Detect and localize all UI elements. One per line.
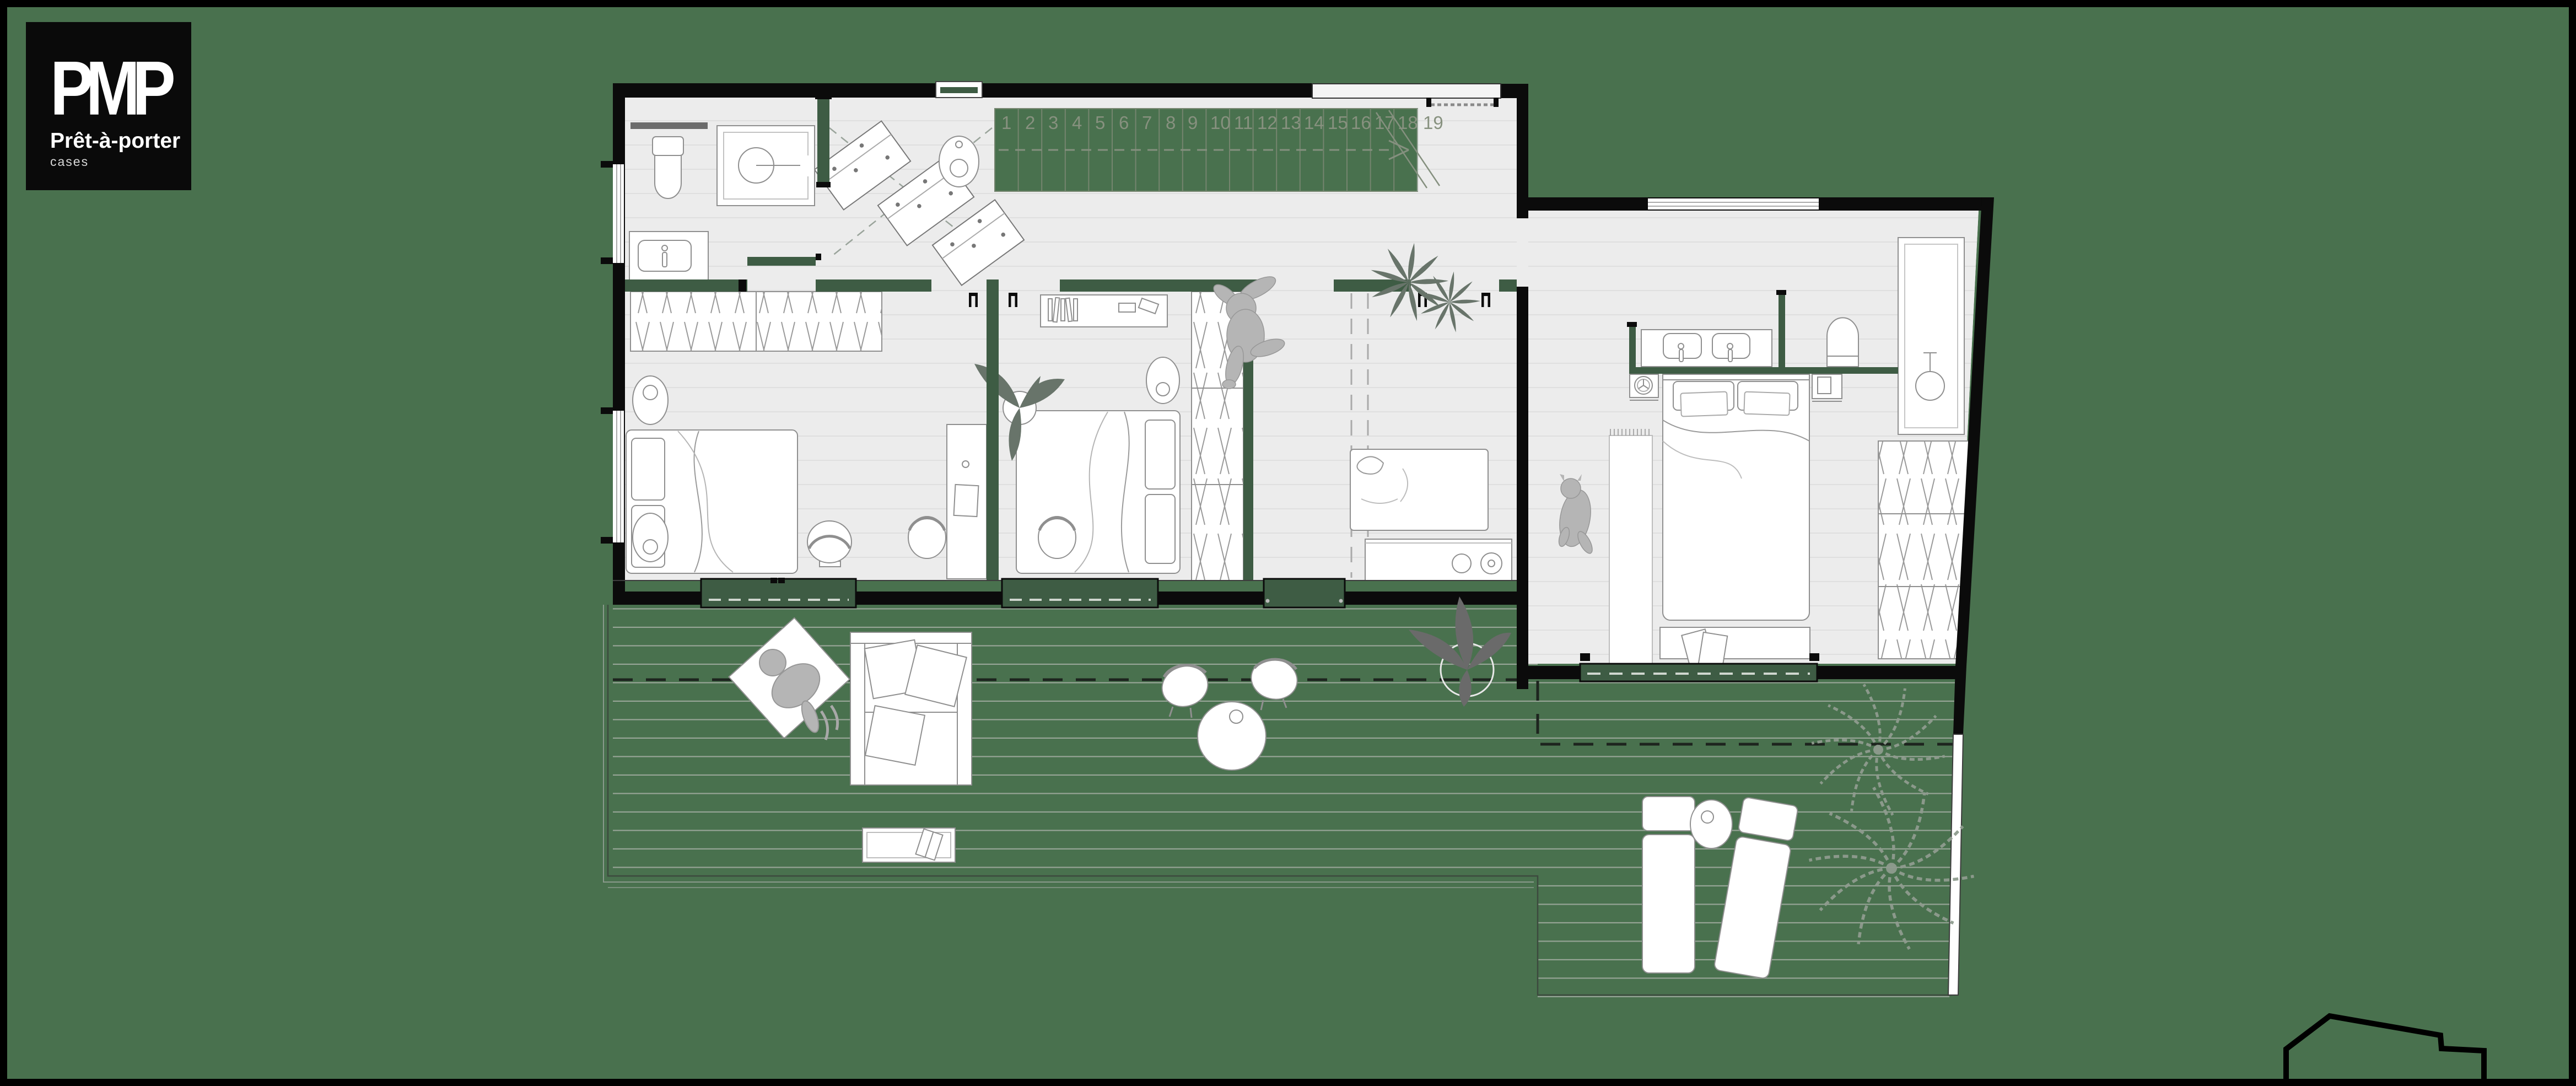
svg-text:18: 18 [1398, 112, 1418, 133]
pouf [1146, 357, 1179, 404]
nightstand-left [1630, 374, 1658, 400]
staircase: 1 2 3 4 5 6 7 8 9 10 11 12 13 14 15 16 1… [995, 109, 1443, 191]
pouf [633, 376, 668, 424]
svg-text:7: 7 [1142, 112, 1152, 133]
logo-subtitle: cases [50, 154, 191, 169]
toilet-icon [653, 137, 683, 198]
bathroom-sink-icon [629, 232, 708, 280]
svg-text:16: 16 [1351, 112, 1371, 133]
deck-door-corridor [1264, 579, 1345, 607]
floor-plan-drawing: 1 2 3 4 5 6 7 8 9 10 11 12 13 14 15 16 1… [0, 0, 2576, 1086]
svg-text:8: 8 [1166, 112, 1176, 133]
shower-icon [1898, 238, 1964, 434]
svg-text:1: 1 [1001, 112, 1011, 133]
bathroom-door-leaf [747, 257, 816, 266]
svg-text:12: 12 [1257, 112, 1278, 133]
desk-chair [1038, 517, 1076, 558]
lounger-table [863, 828, 955, 862]
sliding-door-bedroom-2 [1002, 579, 1158, 607]
rug [1609, 429, 1652, 682]
svg-text:14: 14 [1304, 112, 1324, 133]
lounger-side-table [1690, 800, 1732, 848]
svg-text:6: 6 [1119, 112, 1129, 133]
logo-pmp: PMP Prêt-à-porter cases [26, 22, 191, 190]
wardrobe-1 [630, 292, 882, 351]
svg-text:10: 10 [1210, 112, 1231, 133]
svg-text:19: 19 [1423, 112, 1443, 133]
window-top [936, 82, 982, 98]
svg-text:2: 2 [1025, 112, 1035, 133]
desk-with-books [1041, 295, 1167, 327]
bedroom-divider-wall [987, 279, 999, 580]
svg-text:5: 5 [1095, 112, 1105, 133]
passage-to-master [1517, 218, 1528, 287]
window-left-2 [613, 411, 624, 542]
logo-mark: PMP [50, 54, 191, 123]
window-master-top [1648, 198, 1819, 209]
svg-text:3: 3 [1048, 112, 1058, 133]
kitchen-counter [1365, 539, 1512, 580]
desk-chair [908, 517, 946, 558]
washing-machine [939, 136, 979, 187]
double-sink-vanity [1641, 330, 1772, 367]
pouf [633, 513, 668, 562]
svg-text:11: 11 [1234, 112, 1253, 133]
shower-icon [717, 126, 815, 206]
svg-text:17: 17 [1375, 112, 1395, 133]
site-boundary-notch [2286, 1016, 2484, 1082]
svg-text:4: 4 [1072, 112, 1082, 133]
svg-text:9: 9 [1188, 112, 1198, 133]
towel-shelf [630, 122, 708, 129]
window-left-1 [613, 164, 624, 263]
toilet-icon [1827, 318, 1858, 367]
sun-lounger-1 [1642, 797, 1695, 973]
nightstand-right [1812, 374, 1842, 401]
svg-text:15: 15 [1328, 112, 1348, 133]
desk [947, 424, 987, 579]
site-plan-canvas: 1 2 3 4 5 6 7 8 9 10 11 12 13 14 15 16 1… [0, 0, 2576, 1086]
svg-text:13: 13 [1281, 112, 1301, 133]
outdoor-sofa [850, 632, 972, 785]
logo-brand-name: Prêt-à-porter [50, 129, 191, 153]
daybed [1350, 449, 1488, 530]
bed-master [1663, 374, 1809, 620]
sliding-door-bedroom-1 [701, 578, 856, 607]
